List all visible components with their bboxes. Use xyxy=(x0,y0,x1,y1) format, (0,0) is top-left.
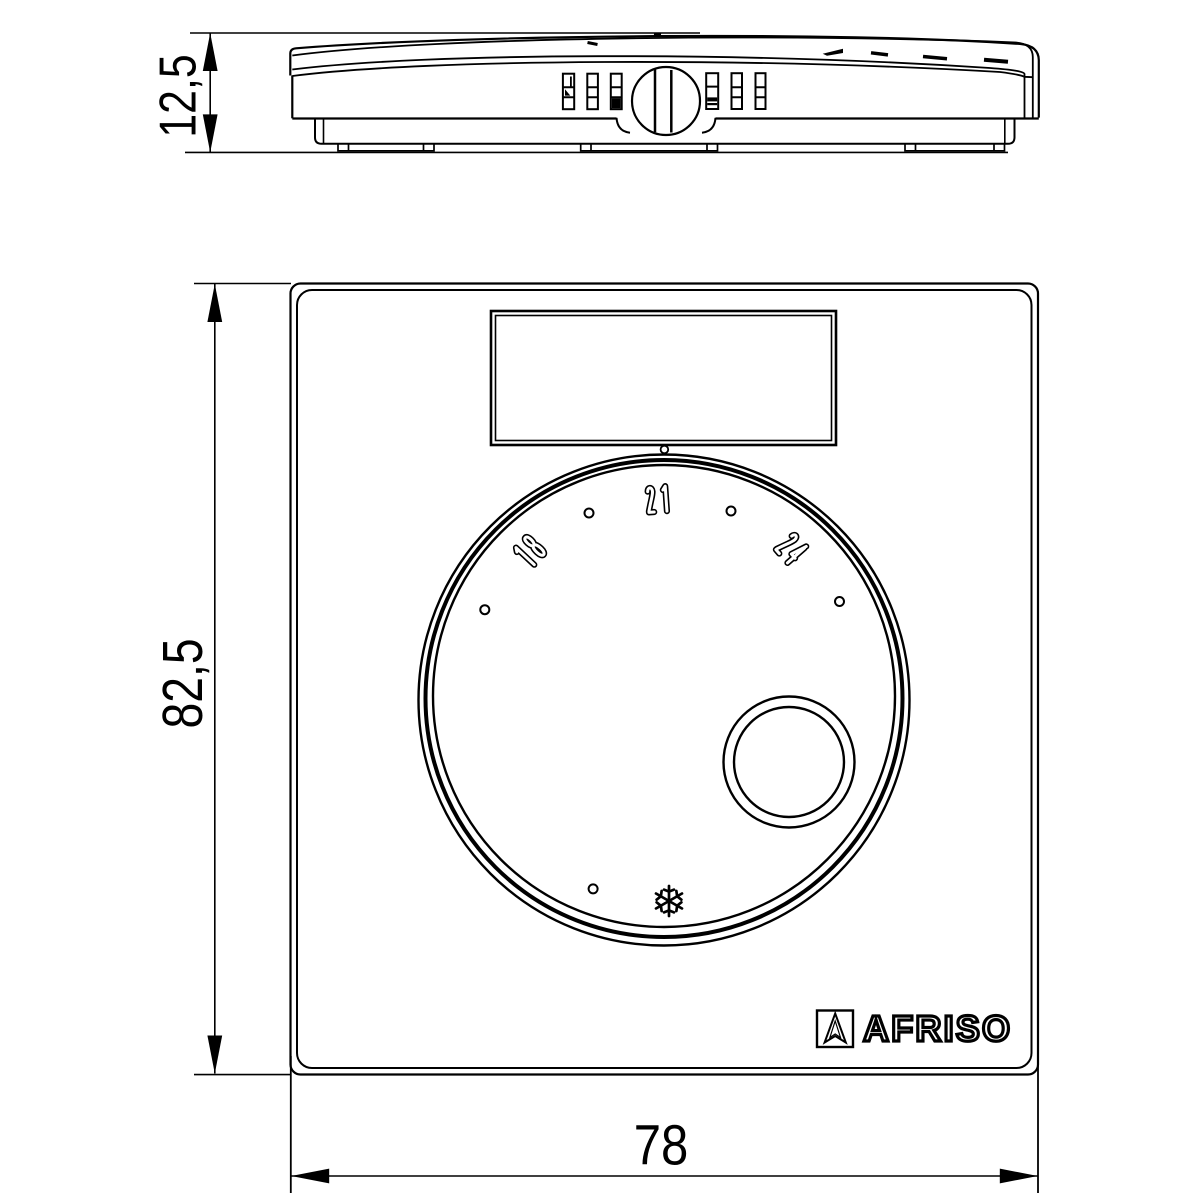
svg-text:78: 78 xyxy=(634,1114,689,1177)
svg-text:12,5: 12,5 xyxy=(150,54,208,137)
svg-text:AFRISO: AFRISO xyxy=(863,1008,1012,1049)
svg-text:82,5: 82,5 xyxy=(151,638,214,728)
